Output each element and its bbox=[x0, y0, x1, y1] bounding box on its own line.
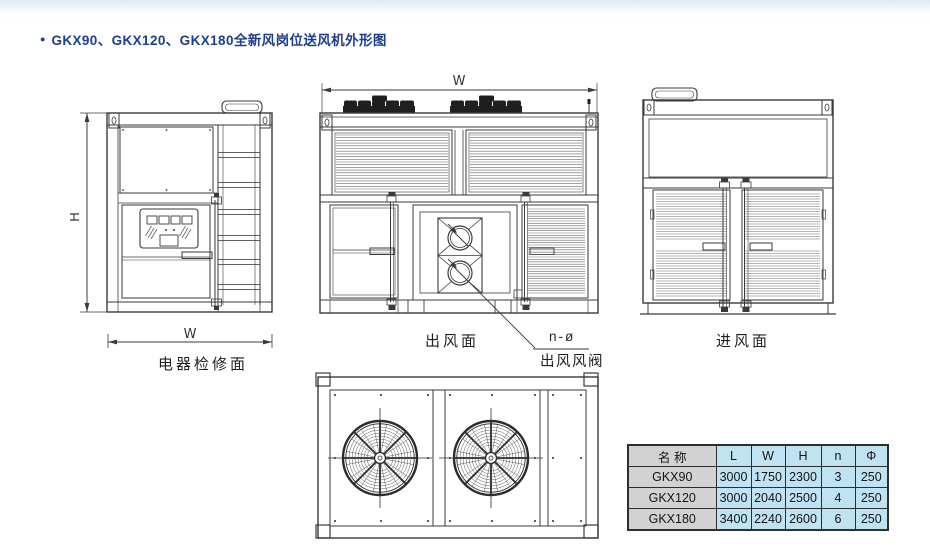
front-elevation-drawing: W bbox=[315, 70, 605, 370]
spec-row-gkx90: GKX90 3000 1750 2300 3 250 bbox=[628, 467, 888, 488]
value-n: 4 bbox=[821, 488, 855, 509]
right-elevation-drawing bbox=[635, 85, 840, 325]
louver-panel-left bbox=[332, 130, 452, 195]
w-dimension: W bbox=[108, 327, 272, 348]
base-skid bbox=[320, 300, 598, 313]
value-phi: 250 bbox=[855, 488, 888, 509]
left-elevation-label: 电器检修面 bbox=[158, 353, 248, 374]
value-l: 3000 bbox=[716, 488, 751, 509]
mid-band bbox=[118, 193, 218, 203]
value-w: 2240 bbox=[751, 509, 785, 531]
spec-col-w: W bbox=[751, 445, 785, 467]
spec-col-n: n bbox=[821, 445, 855, 467]
h-dim-label: H bbox=[70, 212, 83, 222]
outlet-valve-top bbox=[448, 224, 472, 250]
model-name: GKX90 bbox=[628, 467, 716, 488]
value-l: 3000 bbox=[716, 467, 751, 488]
w-dim-label: W bbox=[184, 327, 197, 342]
right-lock-rod bbox=[521, 192, 554, 310]
catalog-page: ● GKX90、GKX120、GKX180全新风岗位送风机外形图 H W bbox=[0, 0, 930, 560]
page-top-gradient bbox=[0, 0, 930, 20]
value-h: 2500 bbox=[785, 488, 821, 509]
left-lock-rod bbox=[370, 192, 396, 310]
spec-row-gkx120: GKX120 3000 2040 2500 4 250 bbox=[628, 488, 888, 509]
top-view-drawing bbox=[312, 370, 607, 545]
right-door-louvered bbox=[514, 205, 588, 298]
fan-guard-left bbox=[328, 408, 432, 508]
value-h: 2300 bbox=[785, 467, 821, 488]
value-h: 2600 bbox=[785, 509, 821, 531]
outlet-valve-count-callout: n-ø bbox=[549, 329, 575, 344]
value-n: 6 bbox=[821, 509, 855, 531]
left-lock-rod bbox=[703, 178, 730, 312]
grab-handle bbox=[222, 101, 262, 113]
spec-col-h: H bbox=[785, 445, 821, 467]
value-phi: 250 bbox=[855, 509, 888, 531]
value-phi: 250 bbox=[855, 467, 888, 488]
grab-handle bbox=[652, 88, 697, 101]
cabinet-frame bbox=[107, 101, 272, 312]
model-name: GKX180 bbox=[628, 509, 716, 531]
value-l: 3400 bbox=[716, 509, 751, 531]
inlet-door-right bbox=[742, 190, 826, 300]
control-panel bbox=[140, 209, 198, 248]
spec-col-name: 名 称 bbox=[628, 445, 716, 467]
left-elevation-drawing: H W bbox=[70, 88, 285, 350]
access-ladder bbox=[218, 125, 260, 305]
title-bullet-icon: ● bbox=[40, 35, 45, 44]
louver-panel-right bbox=[466, 130, 586, 195]
upper-access-door bbox=[120, 127, 213, 193]
spec-table: 名 称 L W H n Φ GKX90 3000 1750 2300 3 250… bbox=[627, 444, 889, 531]
base-skid bbox=[107, 302, 272, 312]
front-elevation-label: 出风面 bbox=[425, 330, 479, 351]
spec-row-gkx180: GKX180 3400 2240 2600 6 250 bbox=[628, 509, 888, 531]
outlet-valve-panel bbox=[413, 205, 517, 300]
fan-guard-right bbox=[439, 408, 543, 508]
right-lock-rod bbox=[741, 178, 772, 312]
model-name: GKX120 bbox=[628, 488, 716, 509]
spec-col-l: L bbox=[716, 445, 751, 467]
h-dimension: H bbox=[70, 113, 107, 312]
roof-fan-motors bbox=[343, 96, 591, 114]
value-w: 1750 bbox=[751, 467, 785, 488]
right-elevation-label: 进风面 bbox=[716, 330, 770, 351]
value-n: 3 bbox=[821, 467, 855, 488]
w-dim-label: W bbox=[453, 74, 466, 89]
spec-col-phi: Φ bbox=[855, 445, 888, 467]
value-w: 2040 bbox=[751, 488, 785, 509]
inlet-door-left bbox=[651, 190, 731, 300]
left-door bbox=[330, 205, 398, 298]
page-title: ● GKX90、GKX120、GKX180全新风岗位送风机外形图 bbox=[40, 29, 387, 49]
spec-header-row: 名 称 L W H n Φ bbox=[628, 445, 888, 467]
title-text: GKX90、GKX120、GKX180全新风岗位送风机外形图 bbox=[51, 29, 386, 49]
outlet-valve-callout-label: 出风风阀 bbox=[540, 350, 604, 371]
base-skid bbox=[640, 303, 836, 314]
door-lock-rod bbox=[182, 193, 222, 310]
